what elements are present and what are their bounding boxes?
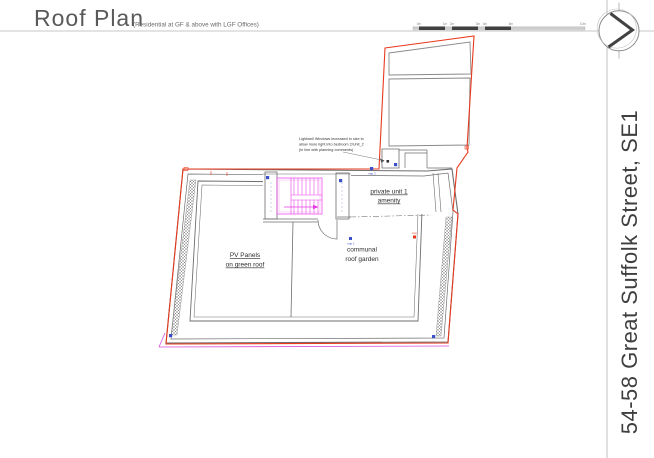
annotation-leader-line bbox=[343, 152, 384, 161]
upper-roof-main bbox=[389, 78, 470, 146]
door-swing-arc bbox=[318, 220, 337, 239]
scale-label: 10m bbox=[580, 22, 587, 26]
roof-plan-sheet: Roof Plan (Residential at GF & above wit… bbox=[0, 0, 654, 458]
rwp-marker bbox=[432, 335, 435, 338]
scale-label: 4m bbox=[483, 22, 488, 26]
project-title: 54-58 Great Suffolk Street, SE1 bbox=[617, 110, 642, 435]
rwp-marker bbox=[169, 334, 172, 337]
demise-dashed-line bbox=[350, 215, 431, 217]
upper-roof-block bbox=[382, 42, 471, 168]
scale-label: 2m bbox=[450, 22, 455, 26]
rwp-marker bbox=[394, 163, 397, 166]
roof-divider bbox=[291, 222, 293, 317]
communal-garden-label: roof garden bbox=[345, 256, 379, 263]
scale-bar-segment bbox=[485, 27, 511, 31]
annotation-line: (in line with planning comments) bbox=[299, 148, 354, 152]
annotation-target-dot bbox=[387, 160, 390, 163]
proposed-outline-bottom bbox=[159, 333, 449, 347]
page-subtitle: (Residential at GF & above with LGF Offi… bbox=[133, 22, 259, 29]
scale-label: 3m bbox=[476, 22, 481, 26]
upper-roof-band bbox=[389, 42, 471, 75]
rwp-label: rwp 1 bbox=[347, 242, 355, 246]
private-amenity-label: private unit 1 bbox=[370, 189, 408, 196]
stair-zone-bg bbox=[263, 172, 351, 221]
amenity-zone-bg bbox=[351, 177, 431, 214]
scale-bar: 0m 1m 2m 3m 4m 5m 10m bbox=[413, 22, 586, 30]
private-amenity-label: amenity bbox=[378, 198, 402, 205]
svp-label: svp bbox=[412, 231, 417, 235]
scale-bar-segment bbox=[419, 27, 445, 31]
north-arrow-icon bbox=[597, 3, 639, 59]
rwp-marker bbox=[266, 176, 269, 179]
pv-panels-label: on green roof bbox=[226, 262, 265, 269]
pv-panels-label: PV Panels bbox=[230, 252, 261, 259]
rwp-marker bbox=[370, 167, 373, 170]
lightwell-annotation: Lightwell Windows increased in size to a… bbox=[299, 137, 389, 163]
annotation-line: Lightwell Windows increased in size to bbox=[299, 137, 364, 141]
rwp-marker bbox=[349, 237, 352, 240]
svp-marker: svp bbox=[412, 231, 417, 239]
scale-label: 0m bbox=[417, 22, 422, 26]
rwp-marker bbox=[339, 179, 342, 182]
page-title: Roof Plan bbox=[34, 5, 144, 31]
communal-garden-label: communal bbox=[347, 247, 378, 254]
annotation-line: allow more light into bedroom 2/Unit_2 bbox=[299, 143, 364, 147]
rwp-label: rwp 2 bbox=[368, 172, 376, 176]
scale-label: 5m bbox=[509, 22, 514, 26]
scale-label: 1m bbox=[443, 22, 448, 26]
scale-bar-segment bbox=[452, 27, 478, 31]
upper-roof-steps bbox=[399, 150, 452, 168]
amenity-right-wall bbox=[433, 173, 441, 212]
